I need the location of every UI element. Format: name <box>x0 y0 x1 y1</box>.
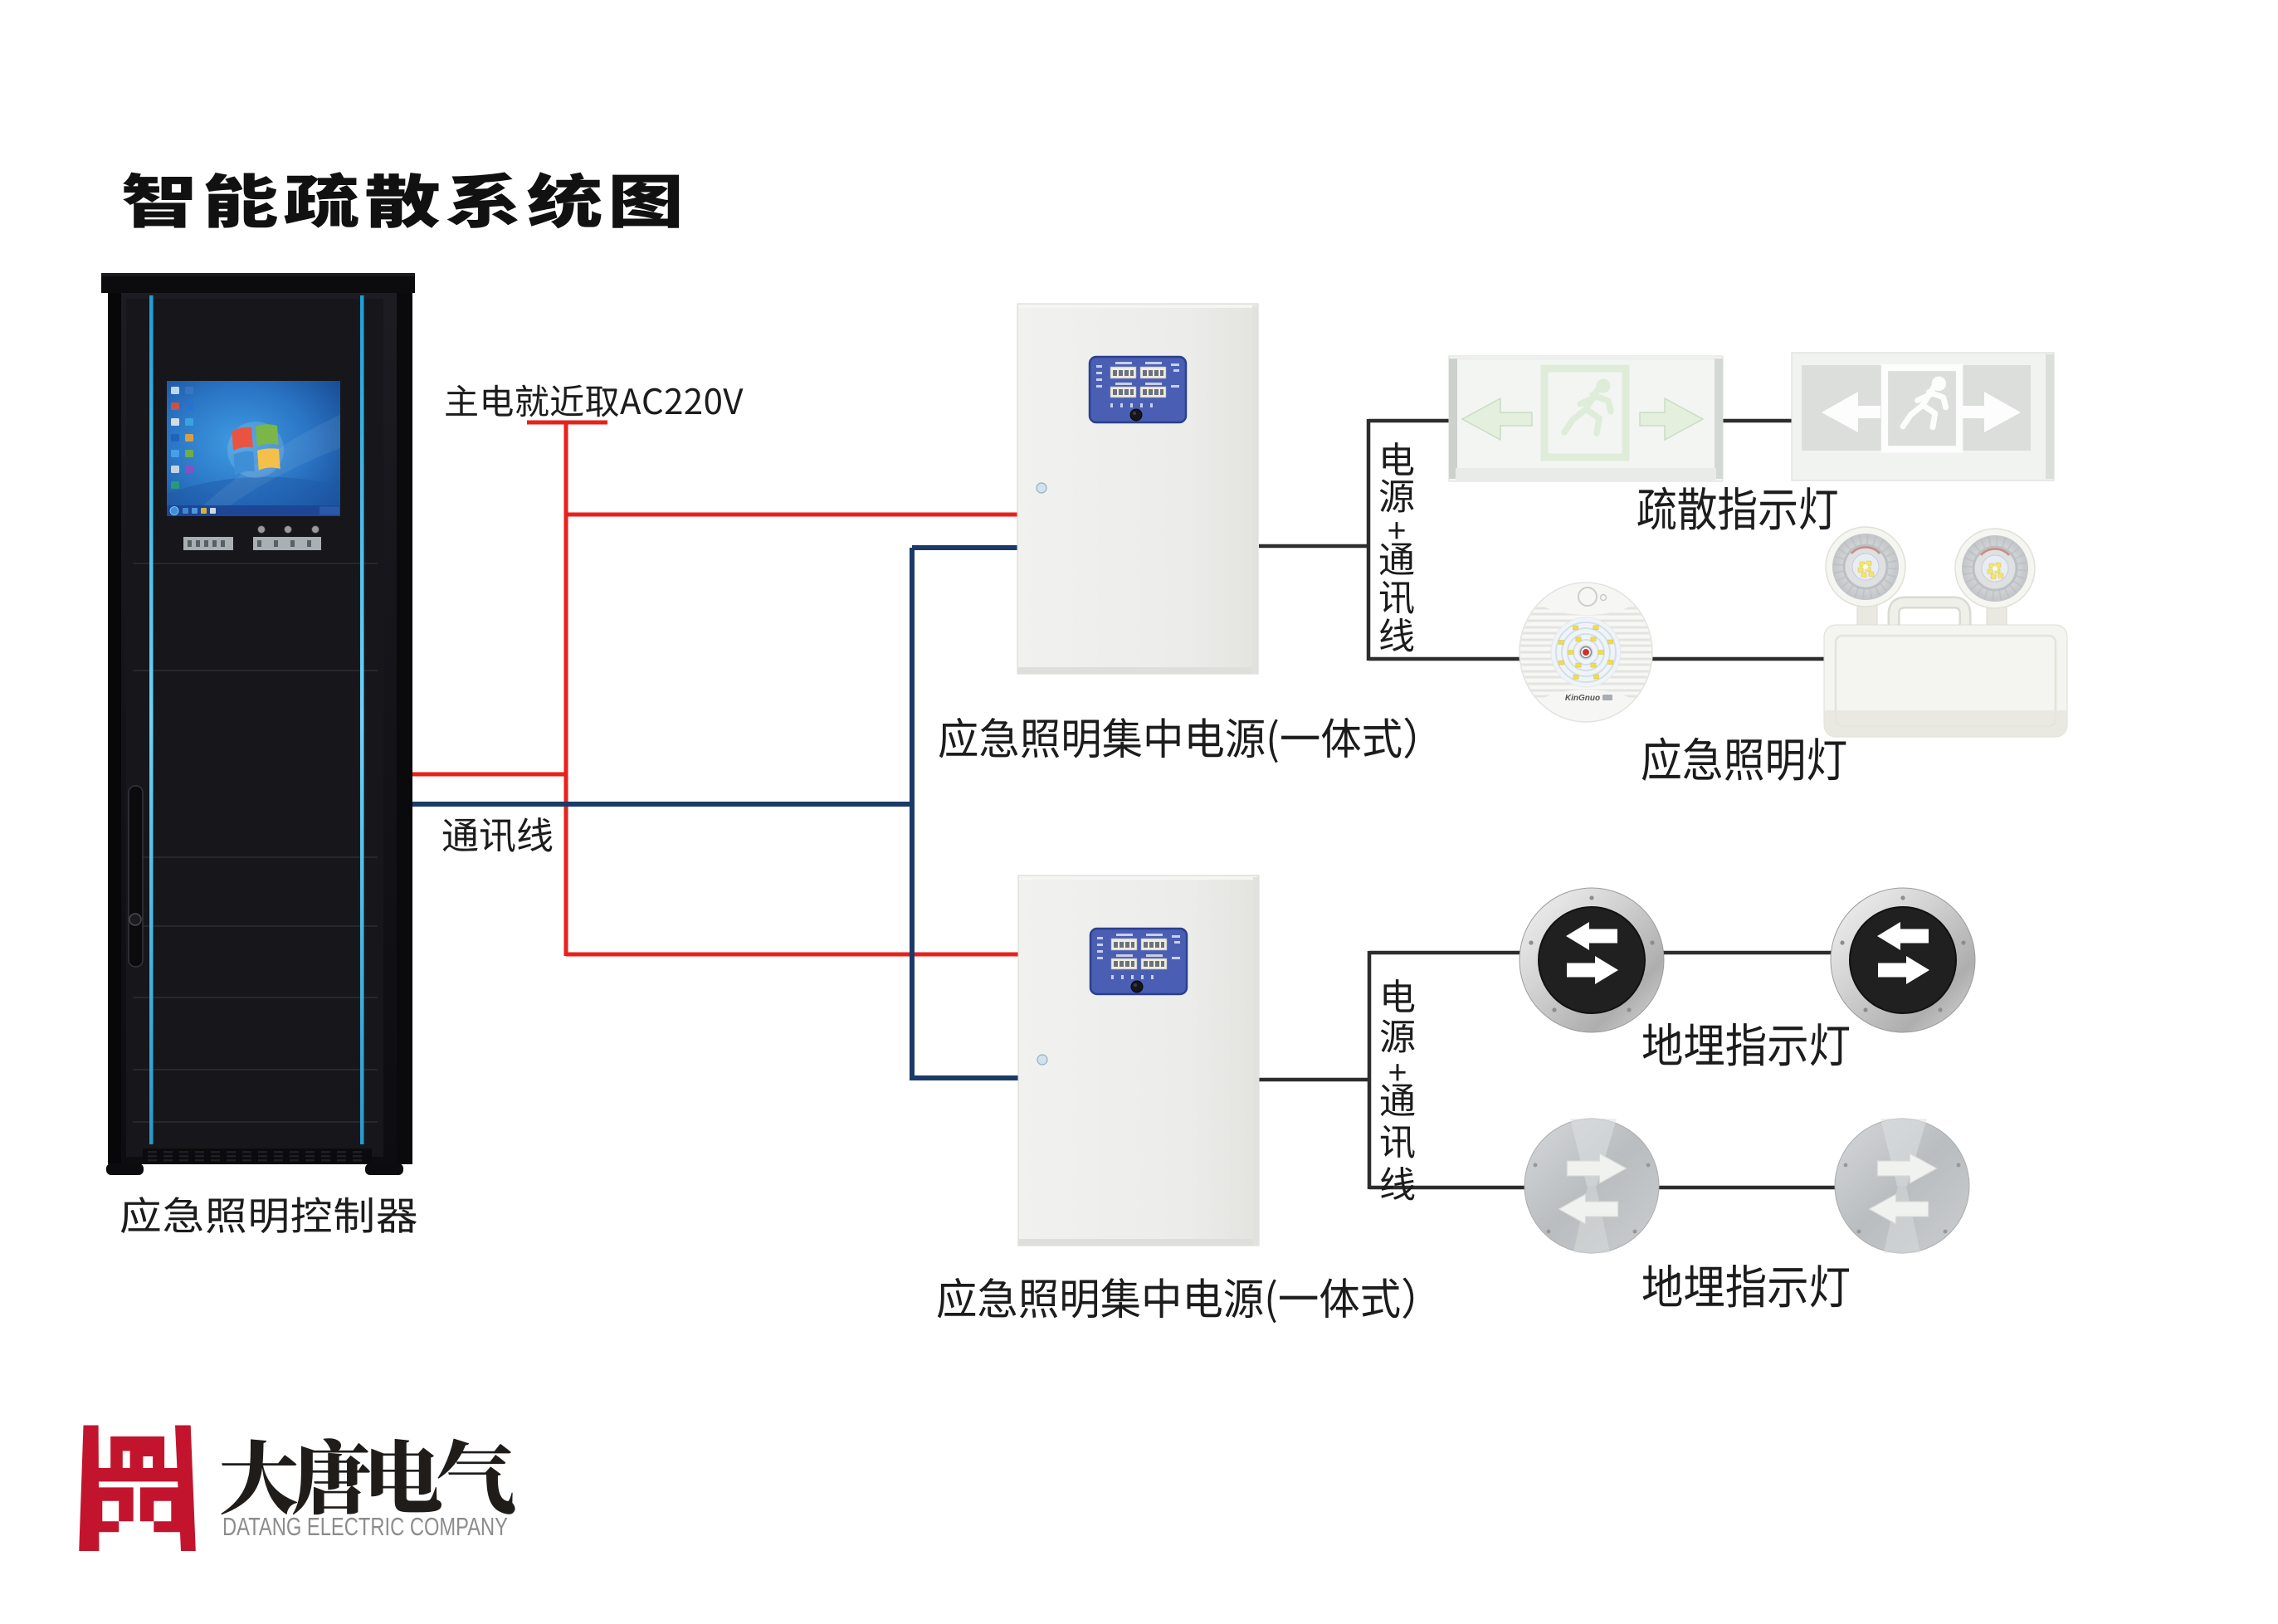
svg-text:DATANG ELECTRIC COMPANY: DATANG ELECTRIC COMPANY <box>222 1512 508 1541</box>
svg-text:KinGnuo: KinGnuo <box>1565 694 1600 703</box>
